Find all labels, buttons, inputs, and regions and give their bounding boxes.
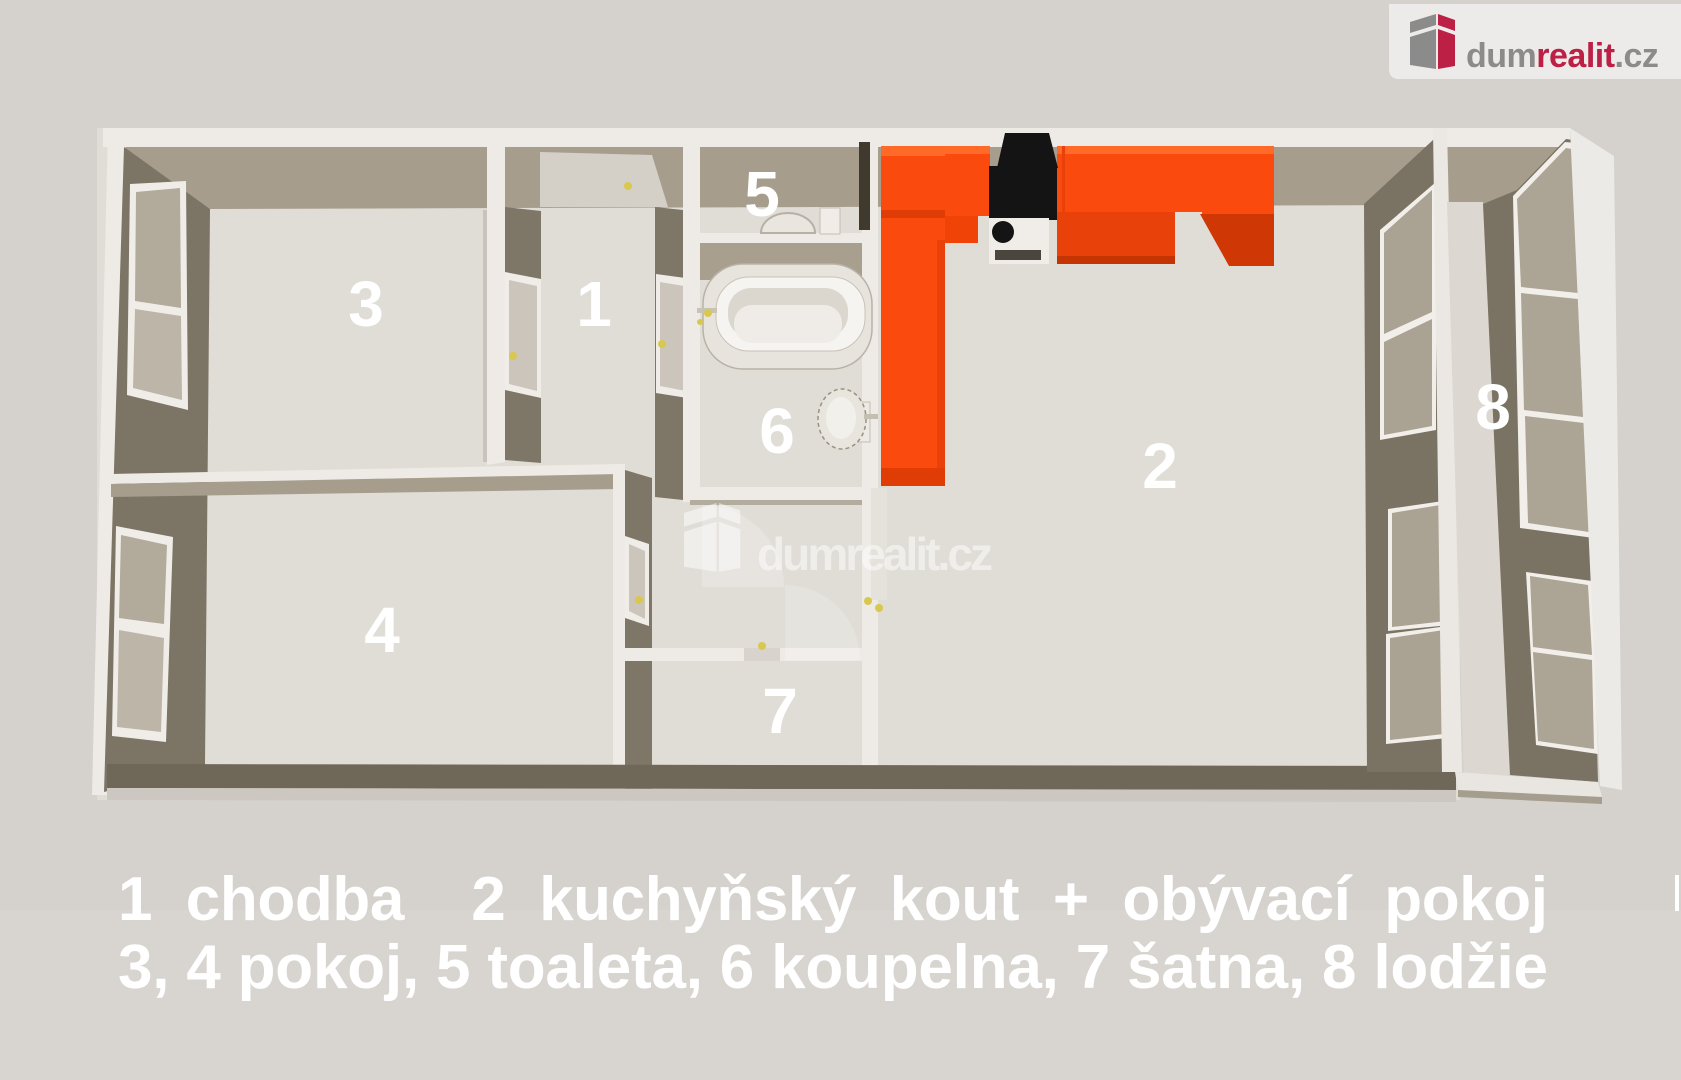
svg-text:7: 7 <box>762 675 798 747</box>
svg-text:1 chodba 2 kuchyňský kou: 1 chodba 2 kuchyňský kout + obývací poko… <box>118 865 1548 934</box>
svg-text:3: 3 <box>348 268 384 340</box>
svg-text:8: 8 <box>1475 371 1511 443</box>
svg-text:dumrealit.cz: dumrealit.cz <box>757 528 993 580</box>
svg-text:4: 4 <box>364 594 400 666</box>
svg-text:dumrealit.cz: dumrealit.cz <box>1466 37 1658 75</box>
svg-text:3, 4 pokoj, 5 toaleta, 6 koupe: 3, 4 pokoj, 5 toaleta, 6 koupelna, 7 šat… <box>118 933 1548 1002</box>
svg-text:2: 2 <box>1142 430 1178 502</box>
svg-text:1: 1 <box>576 268 612 340</box>
svg-text:5: 5 <box>744 158 780 230</box>
svg-text:6: 6 <box>759 395 795 467</box>
